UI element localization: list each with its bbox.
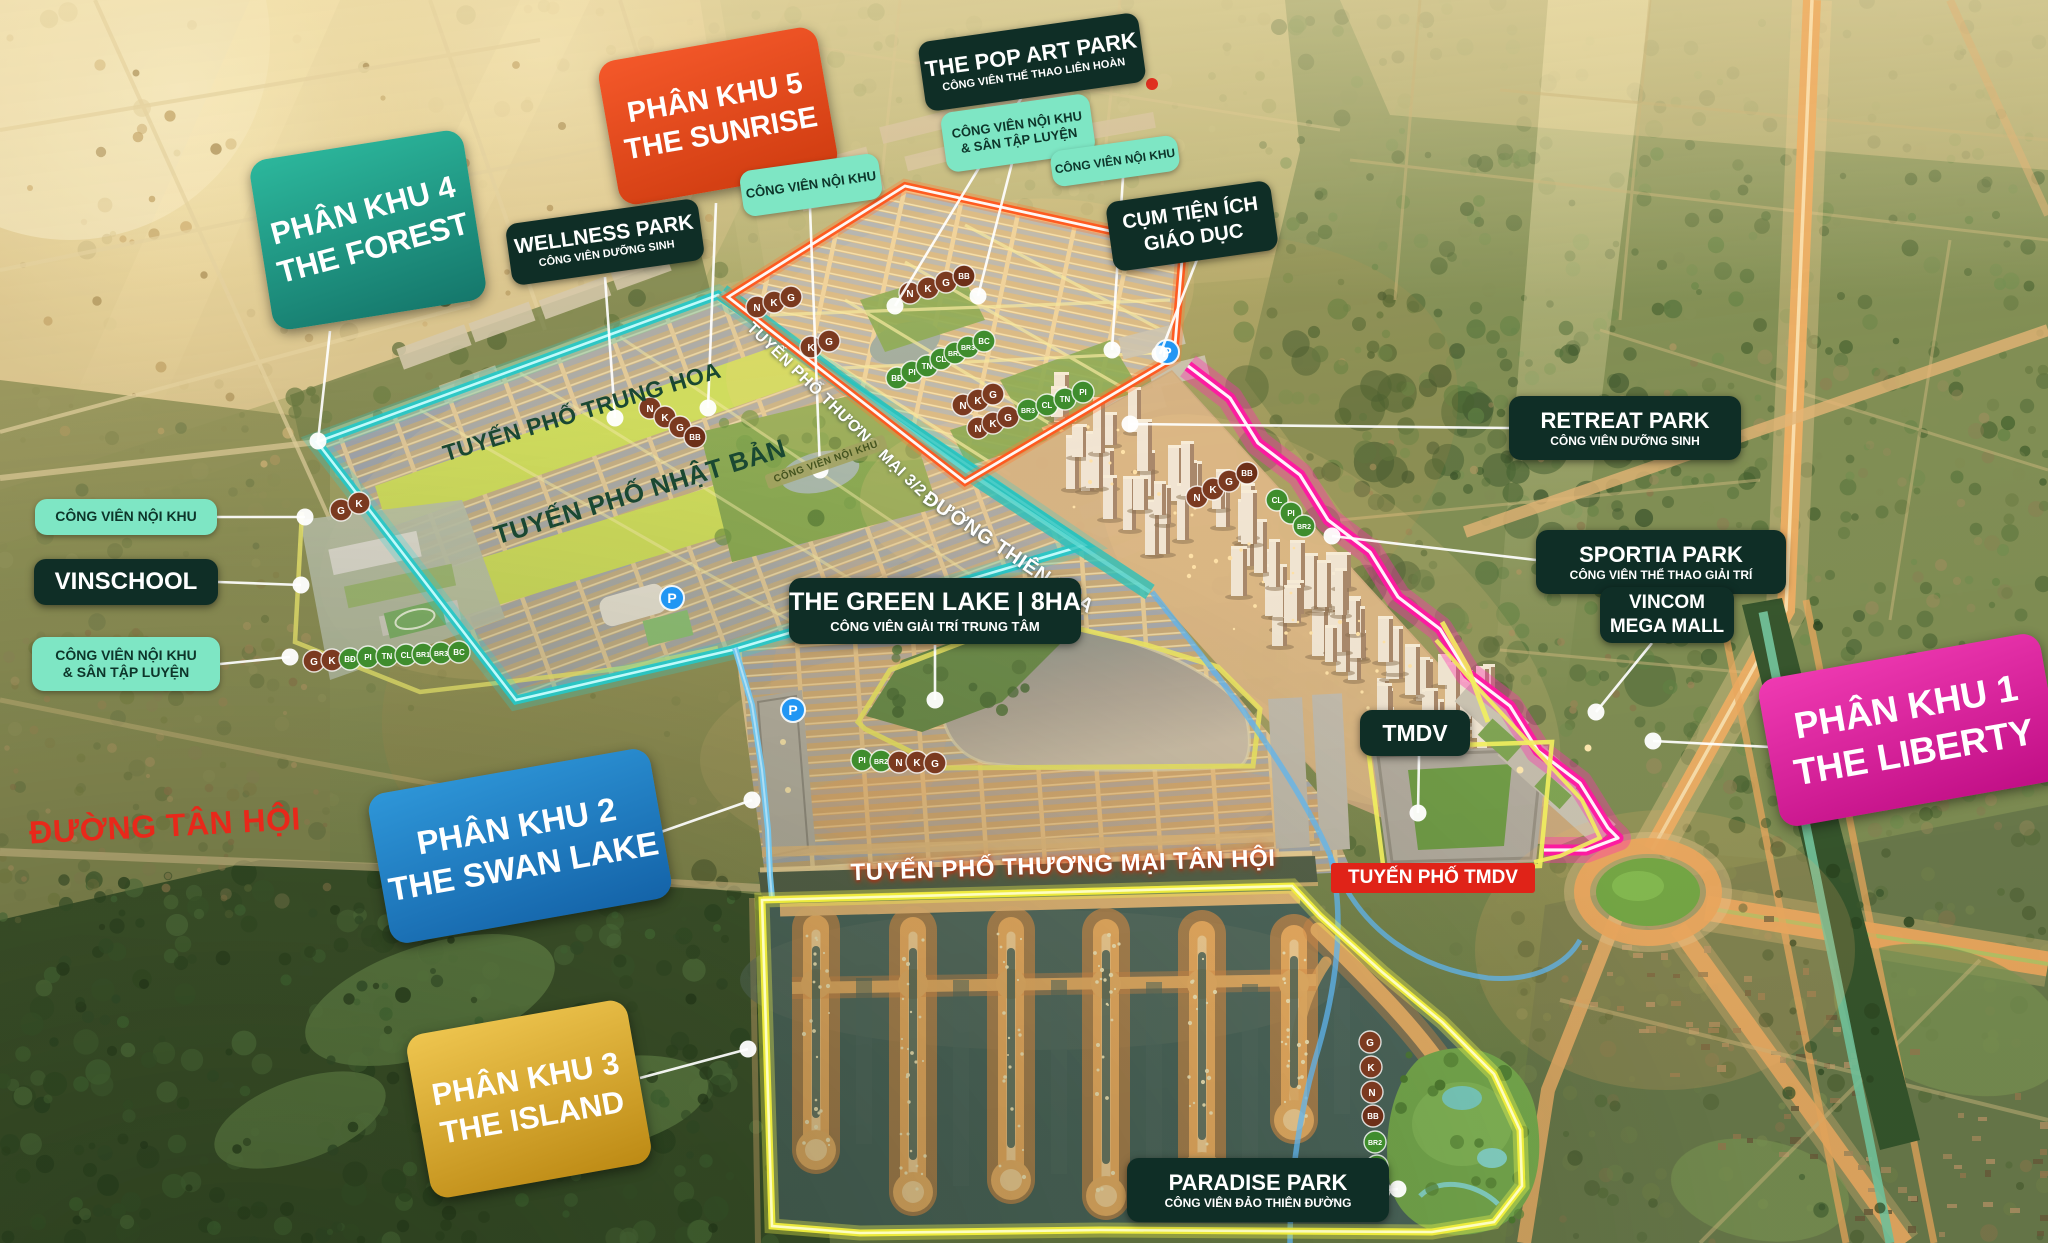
- svg-text:TN: TN: [382, 652, 393, 661]
- svg-text:K: K: [328, 656, 336, 667]
- svg-text:TN: TN: [1060, 395, 1071, 404]
- svg-text:BC: BC: [453, 648, 465, 657]
- svg-text:K: K: [913, 758, 921, 769]
- svg-text:BĐ: BĐ: [344, 655, 356, 664]
- svg-text:G: G: [931, 759, 939, 770]
- svg-text:BR2: BR2: [1368, 1140, 1382, 1147]
- svg-text:BR3: BR3: [961, 345, 975, 352]
- svg-text:K: K: [1367, 1063, 1375, 1074]
- svg-text:BR2: BR2: [1297, 524, 1311, 531]
- svg-text:BB: BB: [958, 272, 970, 281]
- svg-text:BC: BC: [978, 337, 990, 346]
- svg-text:PI: PI: [858, 756, 866, 765]
- svg-text:G: G: [787, 293, 795, 304]
- svg-text:G: G: [1225, 477, 1233, 488]
- svg-text:G: G: [337, 506, 345, 517]
- svg-text:N: N: [895, 758, 902, 769]
- svg-text:G: G: [989, 390, 997, 401]
- svg-text:K: K: [924, 284, 932, 295]
- svg-text:N: N: [974, 424, 981, 435]
- svg-text:P: P: [667, 590, 676, 606]
- svg-text:G: G: [310, 657, 318, 668]
- svg-text:PI: PI: [908, 368, 916, 377]
- svg-text:N: N: [1368, 1088, 1375, 1099]
- svg-text:BB: BB: [1367, 1112, 1379, 1121]
- svg-text:K: K: [770, 298, 778, 309]
- svg-text:G: G: [1366, 1038, 1374, 1049]
- svg-text:P: P: [788, 702, 797, 718]
- svg-text:BR3: BR3: [1021, 408, 1035, 415]
- svg-text:G: G: [942, 278, 950, 289]
- svg-text:K: K: [974, 396, 982, 407]
- svg-text:K: K: [989, 419, 997, 430]
- svg-text:N: N: [753, 303, 760, 314]
- svg-text:BR1: BR1: [416, 652, 430, 659]
- svg-text:PI: PI: [1079, 388, 1087, 397]
- svg-text:G: G: [1004, 413, 1012, 424]
- svg-text:N: N: [906, 289, 913, 300]
- svg-text:BB: BB: [689, 433, 701, 442]
- svg-text:K: K: [661, 413, 669, 424]
- svg-text:CL: CL: [1272, 496, 1283, 505]
- svg-text:N: N: [1193, 493, 1200, 504]
- svg-text:K: K: [1209, 485, 1217, 496]
- svg-text:CL: CL: [1042, 401, 1053, 410]
- svg-text:BR2: BR2: [874, 759, 888, 766]
- svg-text:PI: PI: [1287, 509, 1295, 518]
- svg-text:G: G: [676, 423, 684, 434]
- svg-text:PI: PI: [364, 653, 372, 662]
- svg-text:K: K: [355, 499, 363, 510]
- svg-text:BB: BB: [1241, 469, 1253, 478]
- svg-text:BR3: BR3: [434, 651, 448, 658]
- svg-text:N: N: [959, 401, 966, 412]
- svg-text:CL: CL: [401, 651, 412, 660]
- svg-text:G: G: [825, 337, 833, 348]
